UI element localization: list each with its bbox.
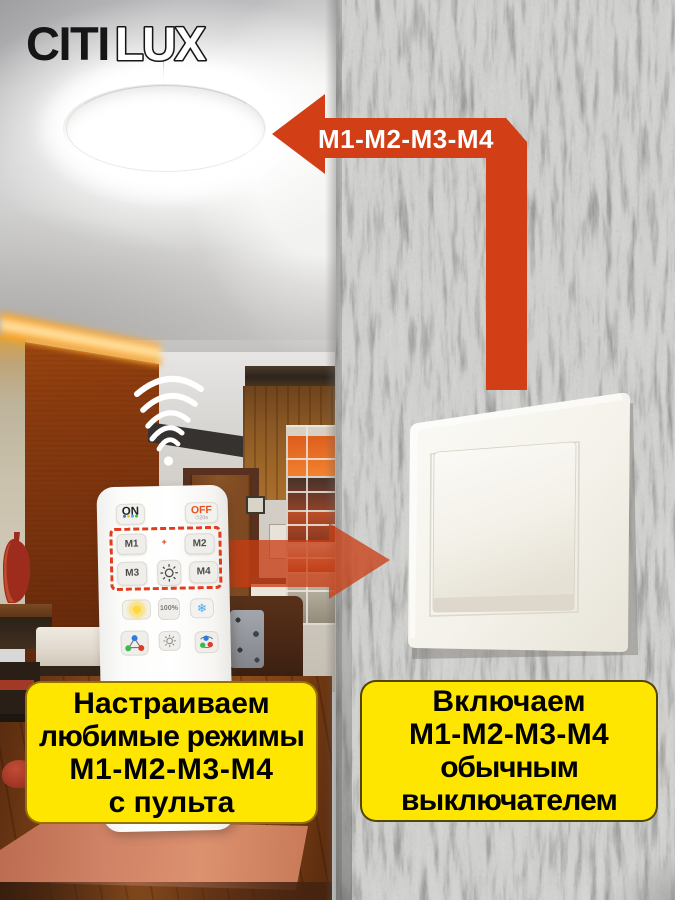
svg-text:M1-M2-M3-M4: M1-M2-M3-M4 — [318, 124, 494, 154]
svg-text:LUX: LUX — [115, 17, 206, 70]
svg-text:CITI: CITI — [26, 17, 109, 70]
